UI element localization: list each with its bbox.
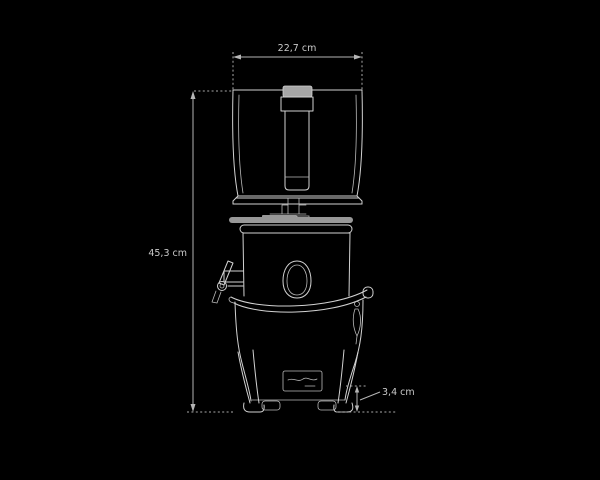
collar (229, 198, 353, 233)
diagram-stage: 22,7 cm 45,3 cm 3,4 cm (0, 0, 600, 480)
width-label: 22,7 cm (278, 43, 317, 54)
foot-pad-left (262, 401, 280, 410)
base-saddle (229, 287, 373, 312)
height-label: 45,3 cm (148, 248, 187, 259)
width-dimension: 22,7 cm (233, 43, 362, 92)
base (235, 300, 363, 412)
bowl-outline (233, 90, 363, 204)
body (243, 233, 350, 296)
tap-pivot (218, 282, 227, 291)
feed-chute (281, 86, 313, 190)
clearance-leader-line (360, 392, 380, 400)
clearance-label: 3,4 cm (382, 387, 415, 398)
pusher-cap (283, 86, 312, 97)
foot-pad-right (318, 401, 336, 410)
clearance-dimension: 3,4 cm (336, 386, 415, 412)
brand-badge (283, 371, 322, 391)
appliance-drawing (212, 86, 373, 412)
left-leg (238, 350, 264, 412)
side-latch (353, 302, 360, 345)
right-leg (334, 350, 358, 412)
front-knob (283, 261, 311, 298)
diagram-canvas: 22,7 cm 45,3 cm 3,4 cm (0, 0, 600, 480)
drip-tip (212, 291, 221, 303)
spout-tap (212, 261, 243, 303)
height-dimension: 45,3 cm (148, 91, 233, 412)
